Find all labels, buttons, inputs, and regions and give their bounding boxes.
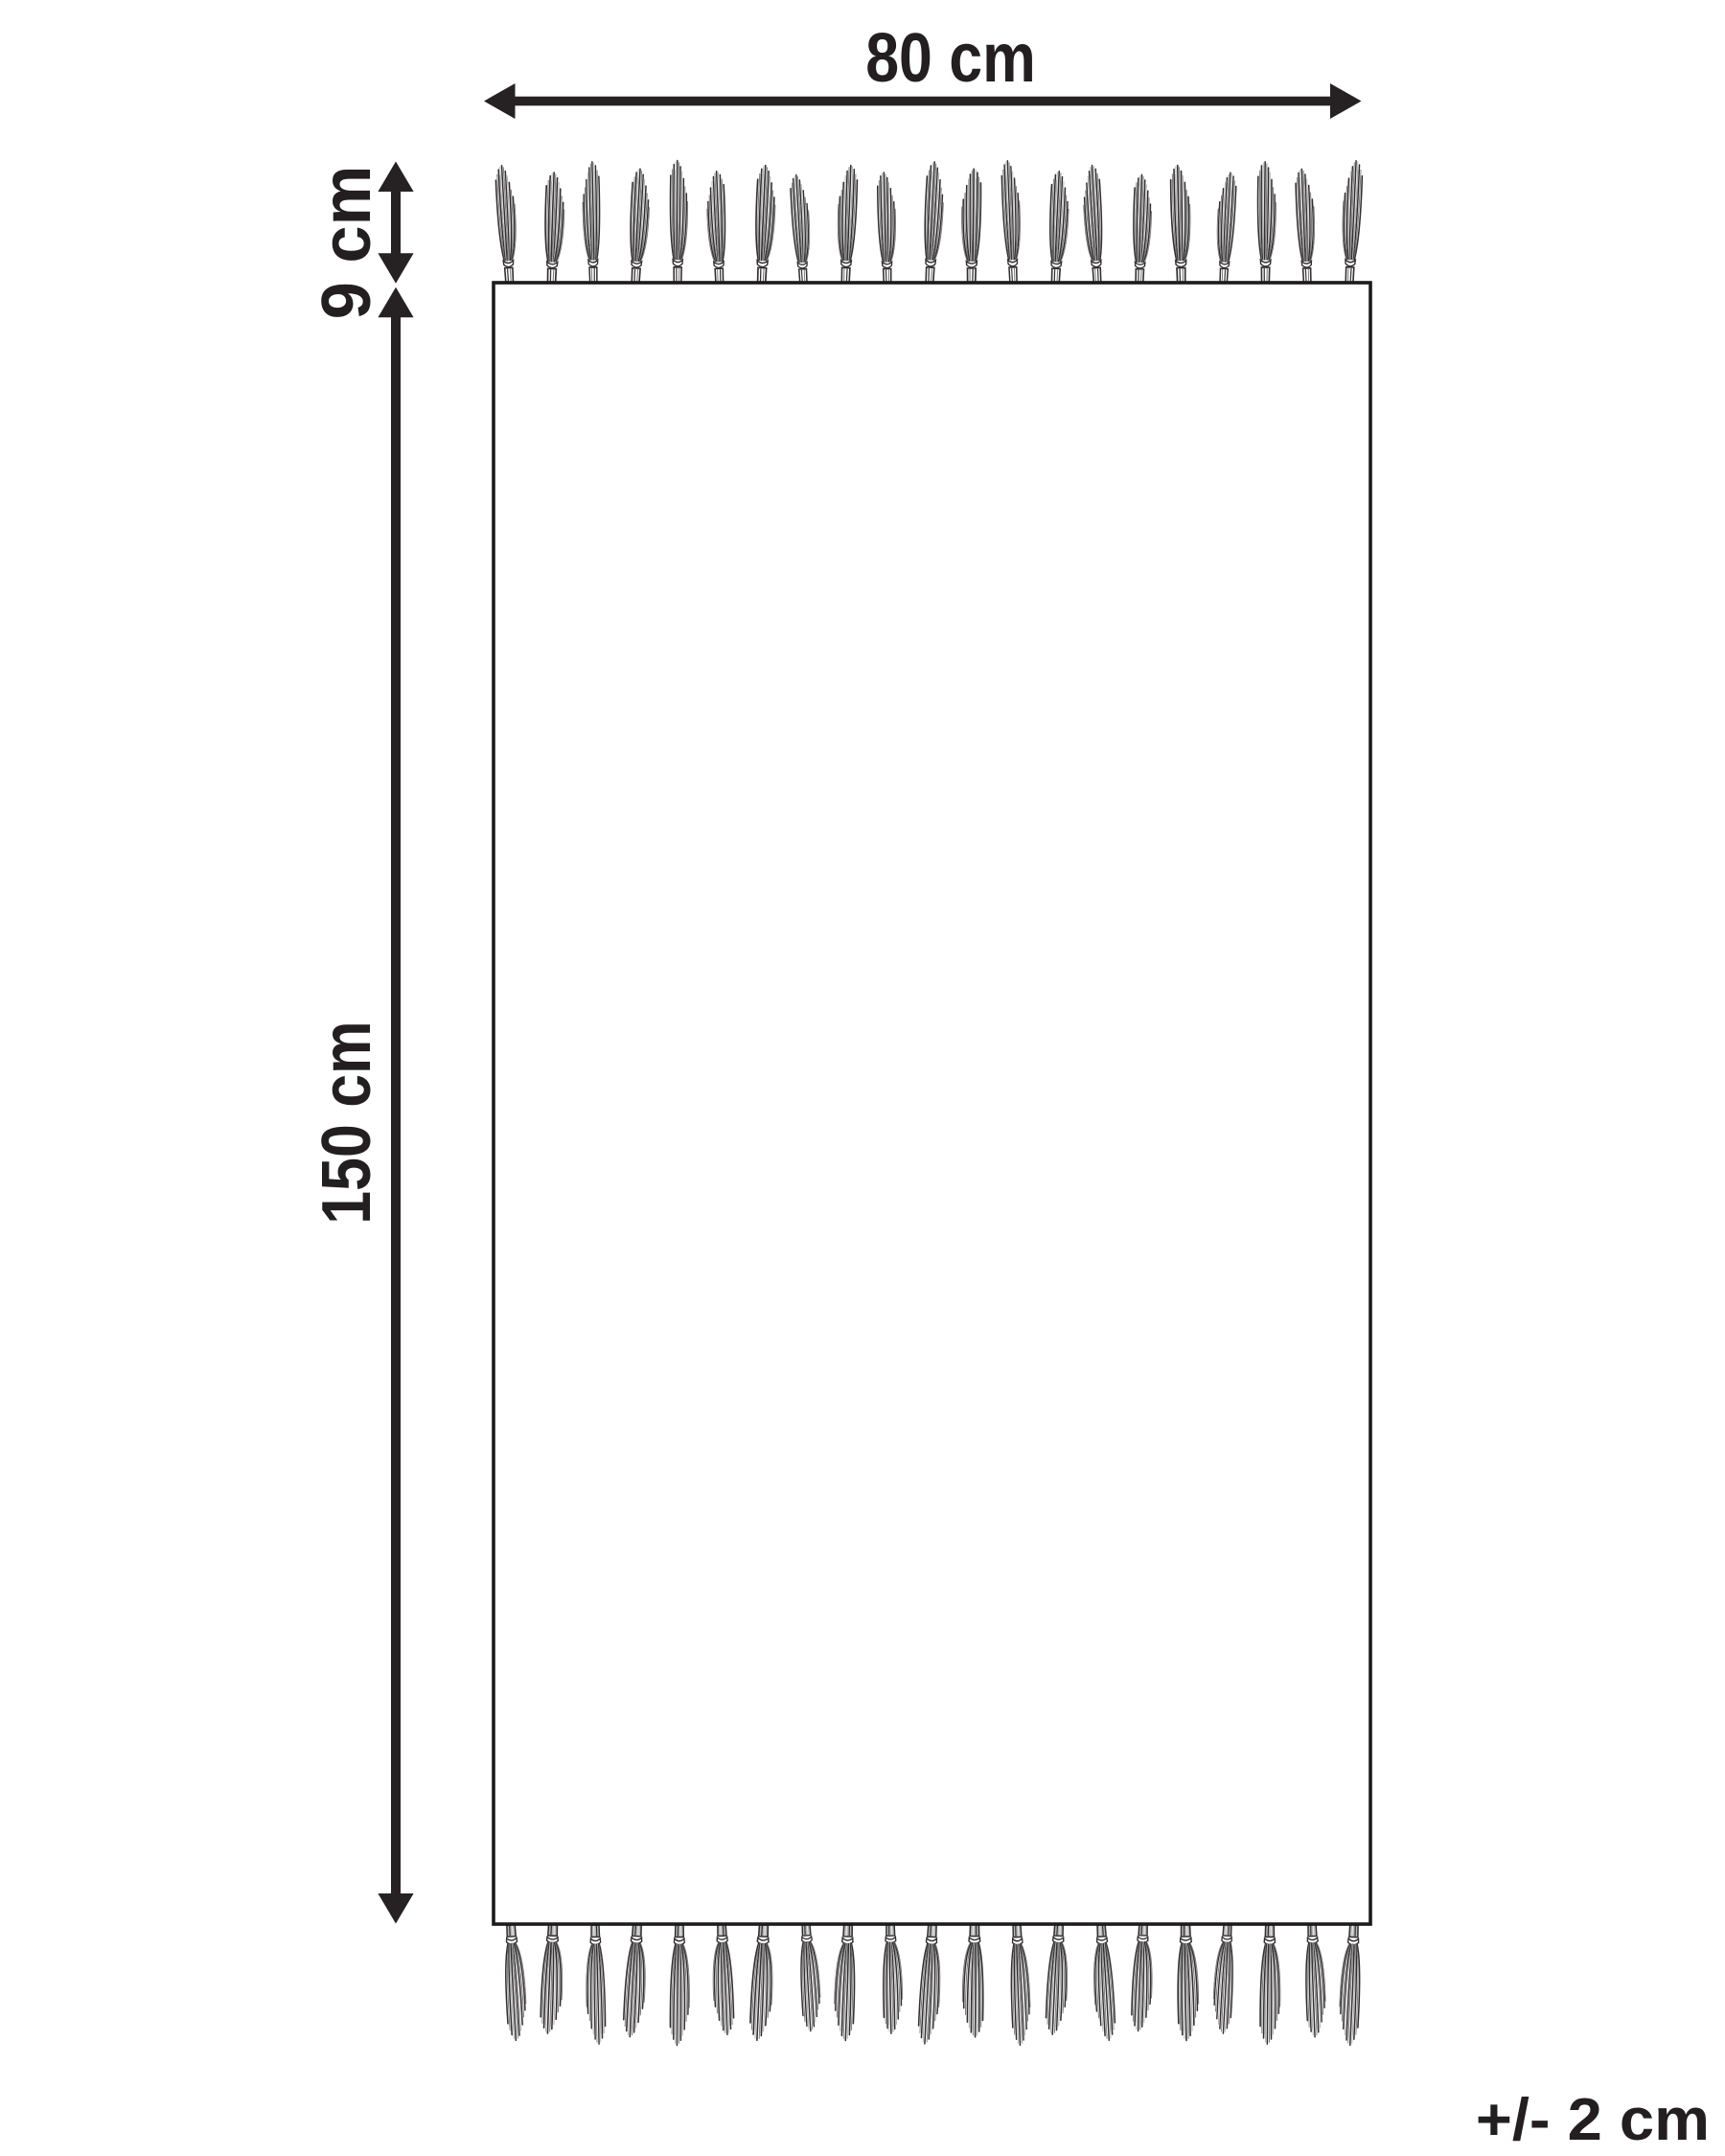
- svg-text:+/- 2 cm: +/- 2 cm: [1476, 2086, 1710, 2152]
- svg-text:80 cm: 80 cm: [865, 20, 1036, 97]
- svg-text:150 cm: 150 cm: [309, 1021, 385, 1224]
- svg-text:9 cm: 9 cm: [308, 166, 385, 320]
